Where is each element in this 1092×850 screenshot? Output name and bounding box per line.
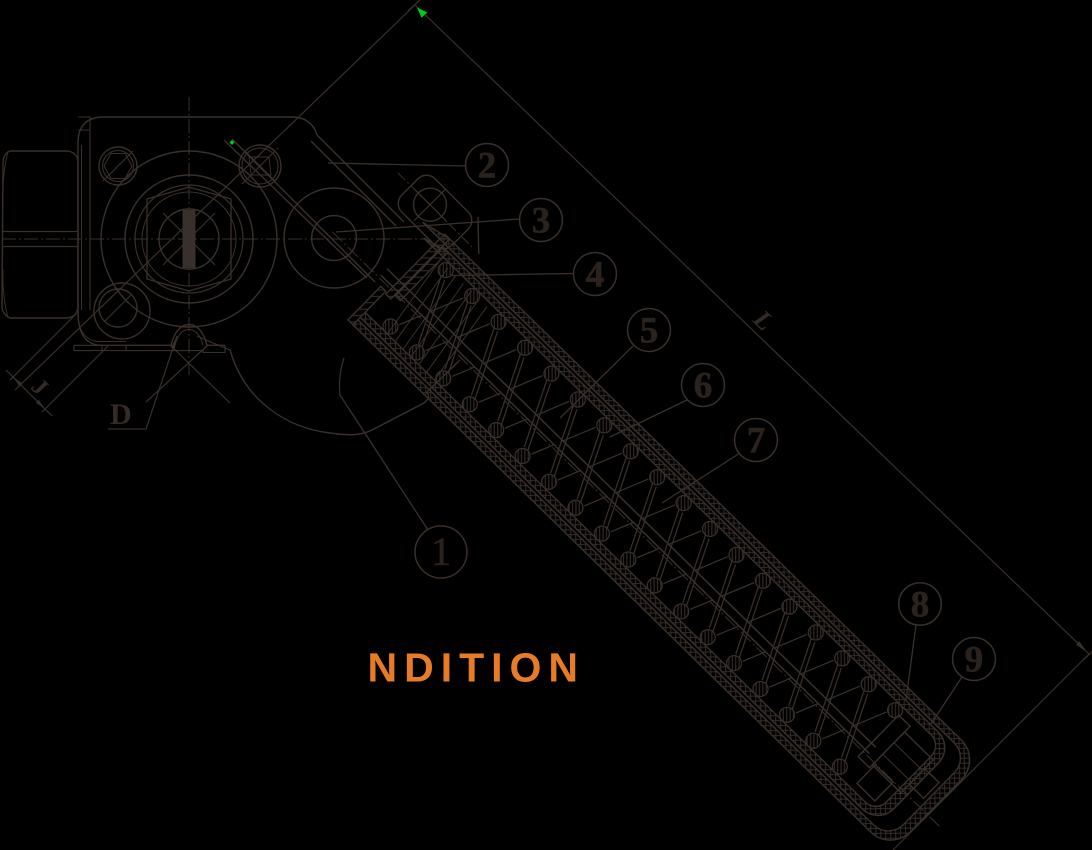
svg-text:5: 5: [640, 311, 659, 352]
svg-text:3: 3: [532, 201, 551, 242]
svg-text:6: 6: [694, 366, 713, 407]
svg-text:D: D: [110, 398, 132, 431]
svg-text:4: 4: [586, 255, 605, 296]
svg-text:8: 8: [911, 585, 930, 626]
svg-text:NDITION: NDITION: [368, 644, 586, 690]
svg-text:7: 7: [747, 421, 766, 462]
svg-text:2: 2: [478, 146, 497, 187]
svg-text:1: 1: [431, 529, 451, 574]
svg-text:9: 9: [965, 640, 984, 681]
